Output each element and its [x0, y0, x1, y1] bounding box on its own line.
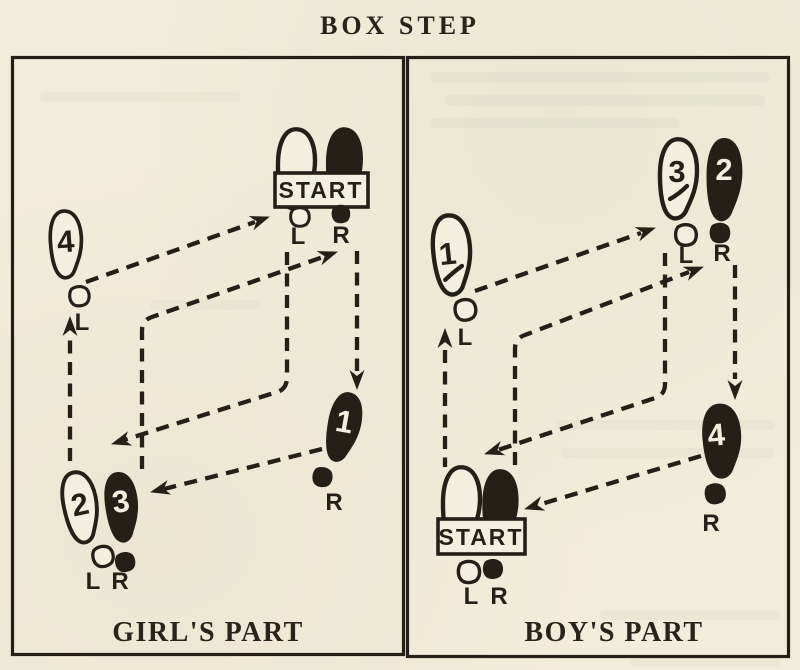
boy-path-1-to-3 [475, 233, 641, 291]
boy-footprint-2: 2 [707, 138, 743, 243]
boy-caption: BOY'S PART [524, 617, 703, 648]
boy-footprint-4-label: R [702, 510, 719, 537]
girl-footprint-1: 1 [311, 388, 367, 492]
girl-start-right-foot-label: R [332, 222, 349, 249]
boy-panel: 1 L 3 L 2 R 4 R [430, 138, 748, 648]
boy-arrow-4-icon [728, 380, 743, 400]
boy-footprint-1-label: L [458, 324, 473, 351]
boy-footprint-3: 3 [660, 139, 697, 245]
boy-footprint-1: 1 [430, 213, 478, 322]
svg-text:3: 3 [668, 154, 685, 189]
boy-start-right-heel [483, 559, 503, 579]
girl-footprint-4: 4 [48, 210, 89, 308]
girl-arrow-1-icon [350, 370, 365, 390]
girl-pair-left-label: L [86, 568, 101, 595]
boy-arrow-1-icon [438, 328, 453, 348]
girl-caption: GIRL'S PART [112, 617, 304, 648]
girl-arrow-2-icon [109, 431, 133, 451]
girl-pair-right-label: R [111, 568, 128, 595]
svg-text:1: 1 [437, 236, 458, 273]
boy-start-left-foot-label: L [464, 583, 479, 610]
boy-path-4-to-start [538, 456, 701, 505]
boy-footprint-3-label: L [679, 242, 694, 269]
boy-arrow-5-icon [482, 441, 506, 461]
boy-start-label: START [439, 524, 524, 550]
girl-footprint-4-label: L [75, 309, 90, 336]
svg-text:2: 2 [715, 152, 732, 187]
page-title: BOX STEP [320, 11, 480, 40]
svg-text:4: 4 [56, 223, 76, 259]
boy-start-right-foot-label: R [490, 583, 507, 610]
boy-arrow-3-icon [635, 221, 659, 242]
girl-path-4-to-start [86, 222, 255, 282]
boy-arrow-6-icon [522, 496, 546, 516]
girl-panel: START L R 1 R 2 3 L R 4 [48, 127, 368, 648]
girl-start-right-heel [332, 205, 351, 224]
girl-arrow-5-icon [249, 210, 273, 231]
book-page: BOX STEP START L R 1 [0, 0, 800, 670]
girl-footprint-1-label: R [325, 489, 342, 516]
boy-start-left-heel [458, 561, 479, 582]
girl-path-3-to-start [142, 257, 323, 469]
girl-start-left-foot-label: L [291, 223, 306, 250]
girl-start-label: START [279, 177, 364, 203]
girl-path-1-to-3 [164, 449, 322, 489]
girl-path-start-to-2 [124, 252, 287, 440]
box-step-diagram: BOX STEP START L R 1 [0, 0, 800, 670]
boy-footprint-2-label: R [713, 240, 730, 267]
